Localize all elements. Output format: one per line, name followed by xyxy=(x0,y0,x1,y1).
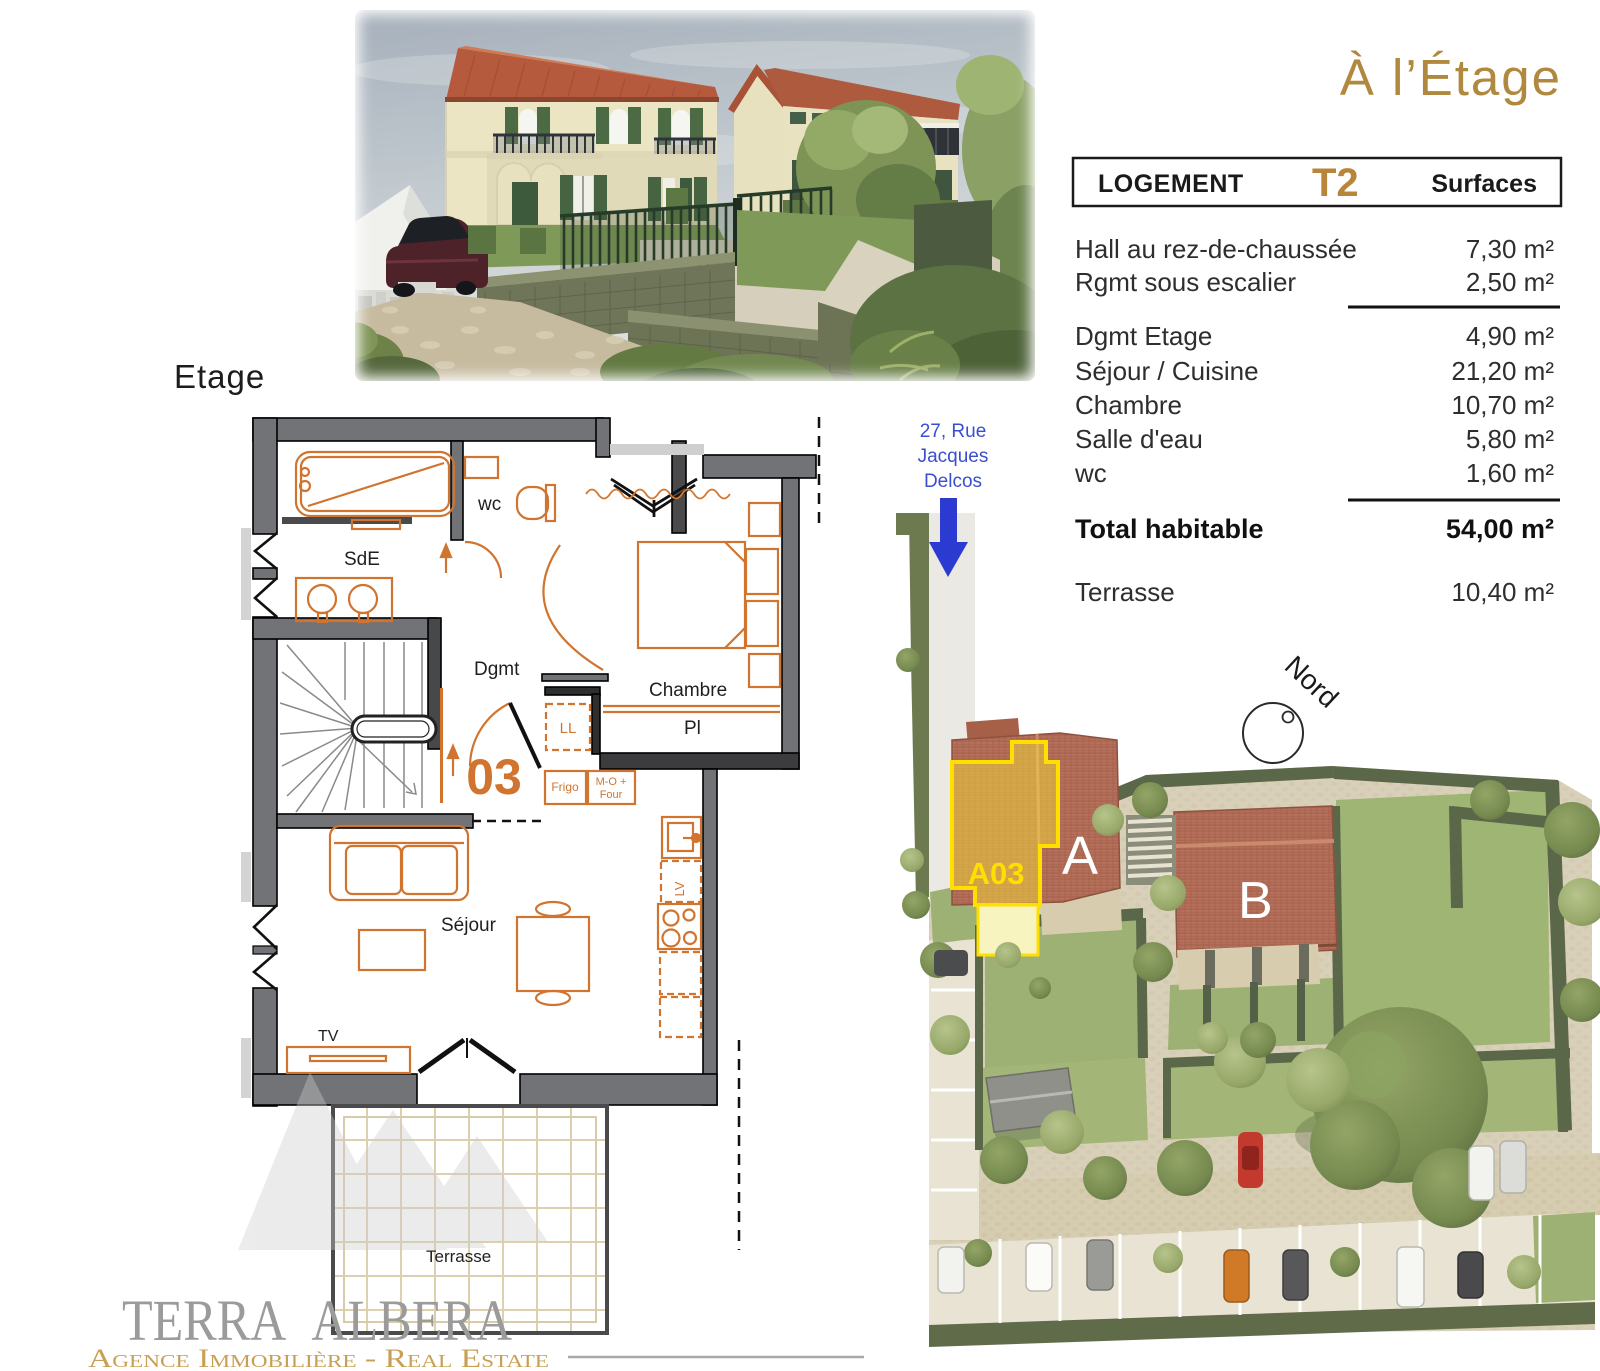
svg-text:wc: wc xyxy=(477,494,501,515)
svg-text:03: 03 xyxy=(466,749,522,805)
svg-text:Séjour: Séjour xyxy=(441,915,497,936)
svg-text:5,80 m²: 5,80 m² xyxy=(1466,424,1554,454)
svg-text:Rgmt sous escalier: Rgmt sous escalier xyxy=(1075,267,1296,297)
svg-text:TV: TV xyxy=(318,1028,339,1045)
svg-text:1,60 m²: 1,60 m² xyxy=(1466,458,1554,488)
svg-text:LOGEMENT: LOGEMENT xyxy=(1098,170,1244,198)
svg-text:27, Rue: 27, Rue xyxy=(920,421,987,442)
svg-text:T2: T2 xyxy=(1312,161,1359,205)
svg-text:Dgmt Etage: Dgmt Etage xyxy=(1075,321,1212,351)
svg-text:Jacques: Jacques xyxy=(918,446,989,467)
svg-text:Agence Immobilière - Real Esta: Agence Immobilière - Real Estate xyxy=(88,1344,549,1371)
svg-text:A03: A03 xyxy=(968,856,1025,891)
svg-text:Salle d'eau: Salle d'eau xyxy=(1075,424,1203,454)
svg-text:7,30 m²: 7,30 m² xyxy=(1466,234,1554,264)
svg-text:Hall au rez-de-chaussée: Hall au rez-de-chaussée xyxy=(1075,234,1357,264)
svg-text:Surfaces: Surfaces xyxy=(1431,170,1537,198)
svg-text:Frigo: Frigo xyxy=(551,780,579,794)
svg-text:2,50 m²: 2,50 m² xyxy=(1466,267,1554,297)
svg-text:LL: LL xyxy=(560,720,577,737)
svg-text:Four: Four xyxy=(600,789,623,801)
svg-text:Séjour / Cuisine: Séjour / Cuisine xyxy=(1075,356,1259,386)
svg-text:LV: LV xyxy=(672,881,687,896)
svg-text:Nord: Nord xyxy=(1279,650,1345,714)
svg-text:B: B xyxy=(1238,872,1273,930)
svg-text:Chambre: Chambre xyxy=(649,680,727,701)
svg-text:54,00 m²: 54,00 m² xyxy=(1446,514,1554,544)
svg-text:Terrasse: Terrasse xyxy=(1075,577,1175,607)
svg-text:A: A xyxy=(1062,826,1098,886)
svg-text:Pl: Pl xyxy=(684,718,701,739)
svg-text:4,90 m²: 4,90 m² xyxy=(1466,321,1554,351)
svg-text:Etage: Etage xyxy=(174,358,265,395)
svg-text:Total habitable: Total habitable xyxy=(1075,514,1264,544)
svg-text:wc: wc xyxy=(1074,458,1107,488)
svg-text:Chambre: Chambre xyxy=(1075,390,1182,420)
svg-text:21,20 m²: 21,20 m² xyxy=(1451,356,1554,386)
svg-text:M-O +: M-O + xyxy=(596,776,627,788)
svg-text:10,70 m²: 10,70 m² xyxy=(1451,390,1554,420)
svg-text:Dgmt: Dgmt xyxy=(474,659,520,680)
svg-text:Delcos: Delcos xyxy=(924,471,982,492)
svg-text:SdE: SdE xyxy=(344,549,380,570)
svg-text:10,40 m²: 10,40 m² xyxy=(1451,577,1554,607)
svg-text:À l’Étage: À l’Étage xyxy=(1340,49,1562,106)
